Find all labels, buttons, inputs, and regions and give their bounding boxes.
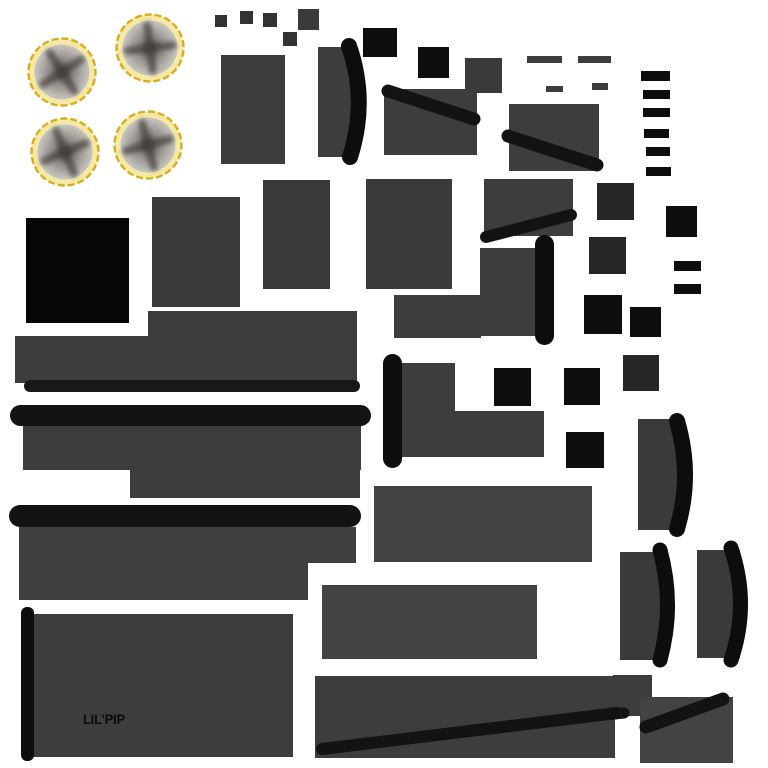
fan-disc-icon [103, 1, 197, 95]
texture-atlas-canvas: LIL'PIP [0, 0, 768, 768]
diagonal-bar [388, 91, 474, 119]
crescent-bar [660, 550, 668, 660]
atlas-overlay [0, 0, 768, 768]
fan-disc-icon [22, 32, 101, 111]
fan-disc-icon [21, 108, 108, 195]
diagonal-bar [486, 215, 571, 237]
diagonal-bar [508, 136, 597, 165]
crescent-bar [731, 548, 741, 660]
crescent-bar [677, 421, 685, 529]
crescent-bar [349, 46, 359, 157]
diagonal-bar [646, 699, 723, 727]
fan-disc-icon [102, 99, 194, 191]
